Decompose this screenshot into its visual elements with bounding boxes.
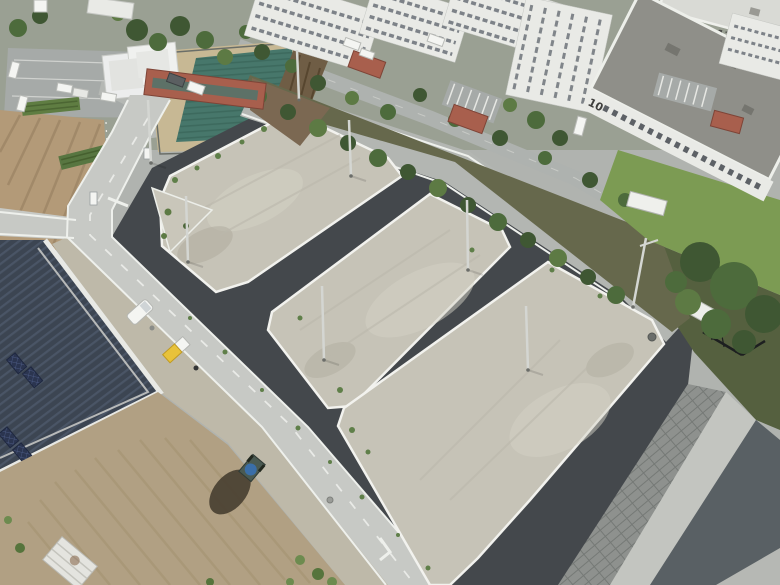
aerial-drone-photo: 11 10 [0,0,780,585]
manhole [327,497,333,503]
worker-person [194,366,199,371]
manhole [150,326,155,331]
manhole [648,333,656,341]
aerial-photo-canvas: 11 10 [0,0,780,585]
truck [34,0,47,12]
